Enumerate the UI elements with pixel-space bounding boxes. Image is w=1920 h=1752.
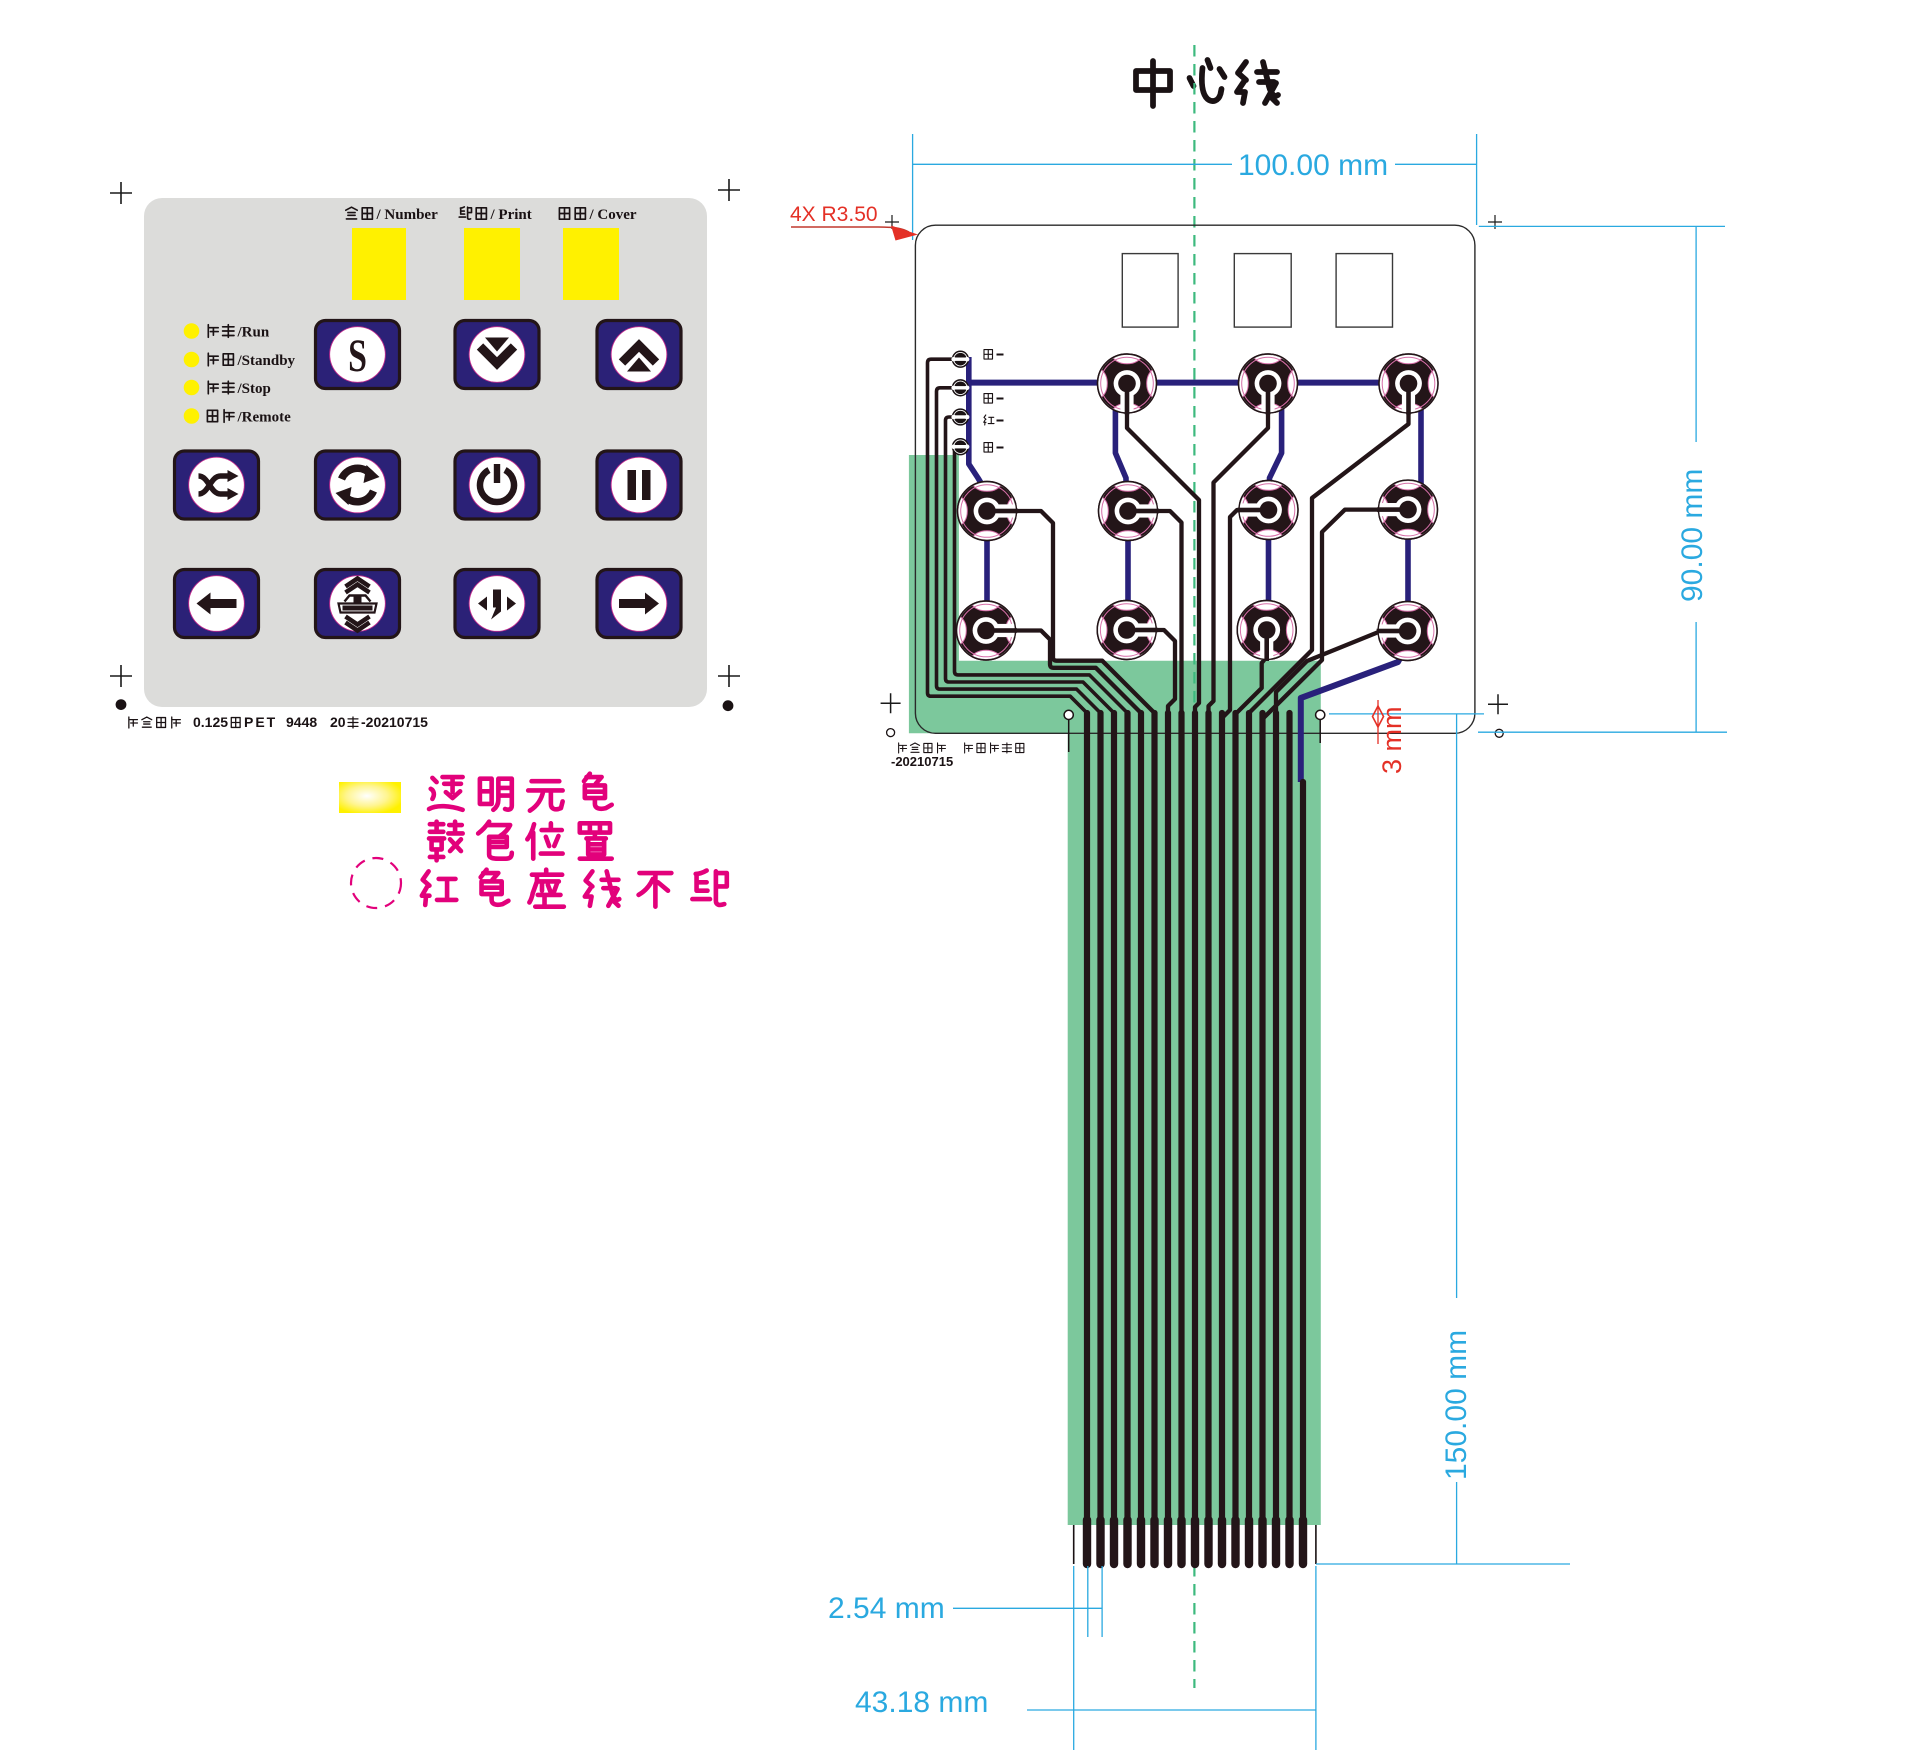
svg-text:/Remote: /Remote (237, 410, 292, 426)
svg-text:90.00 mm: 90.00 mm (1676, 469, 1709, 602)
svg-text:9448: 9448 (286, 714, 317, 730)
svg-text:20: 20 (330, 714, 346, 730)
svg-text:3 mm: 3 mm (1377, 707, 1407, 775)
svg-text:-20210715: -20210715 (361, 714, 428, 730)
svg-text:/Run: /Run (237, 325, 270, 341)
svg-text:/Standby: /Standby (237, 353, 296, 369)
svg-text:/Stop: /Stop (237, 381, 271, 397)
svg-text:43.18 mm: 43.18 mm (855, 1686, 988, 1719)
svg-text:0.125: 0.125 (193, 714, 228, 730)
svg-text:-20210715: -20210715 (891, 754, 953, 769)
svg-text:150.00 mm: 150.00 mm (1440, 1330, 1473, 1480)
svg-text:/ Print: / Print (490, 207, 532, 223)
svg-text:S: S (348, 330, 367, 382)
svg-text:/ Cover: / Cover (589, 207, 637, 223)
svg-text:4X R3.50: 4X R3.50 (790, 203, 878, 226)
svg-text:2.54 mm: 2.54 mm (828, 1592, 945, 1625)
svg-text:PET: PET (244, 714, 277, 730)
svg-text:/ Number: / Number (376, 207, 439, 223)
svg-text:100.00 mm: 100.00 mm (1238, 149, 1388, 182)
